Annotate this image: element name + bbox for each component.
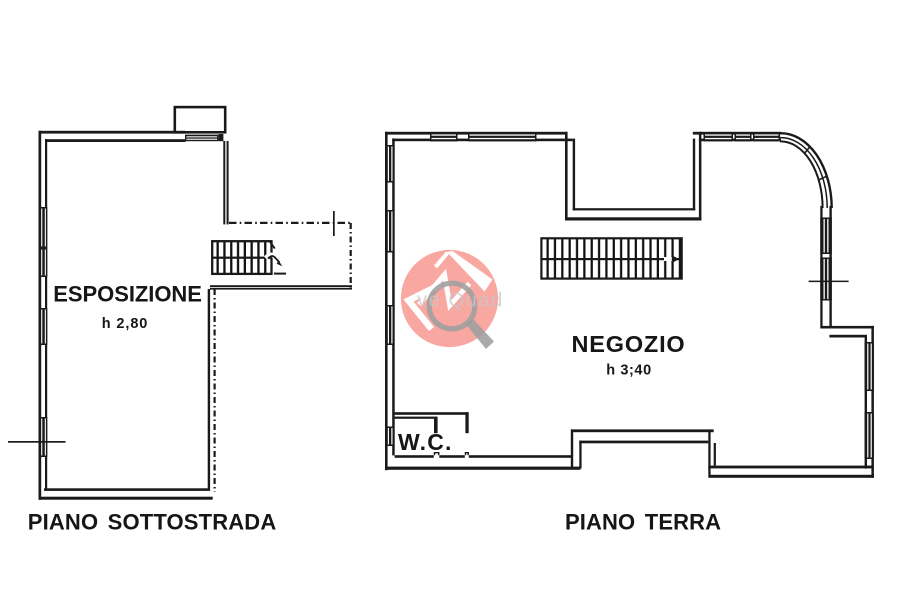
svg-text:NEGOZIO: NEGOZIO xyxy=(572,331,686,357)
svg-text:PIANO SOTTOSTRADA: PIANO SOTTOSTRADA xyxy=(28,509,277,534)
svg-text:ESPOSIZIONE: ESPOSIZIONE xyxy=(53,281,202,306)
svg-text:ve Quad: ve Quad xyxy=(417,290,504,312)
svg-text:W.C.: W.C. xyxy=(398,429,453,455)
svg-text:h 2,80: h 2,80 xyxy=(102,316,149,332)
svg-text:h 3;40: h 3;40 xyxy=(606,362,652,378)
svg-text:PIANO TERRA: PIANO TERRA xyxy=(565,509,721,534)
